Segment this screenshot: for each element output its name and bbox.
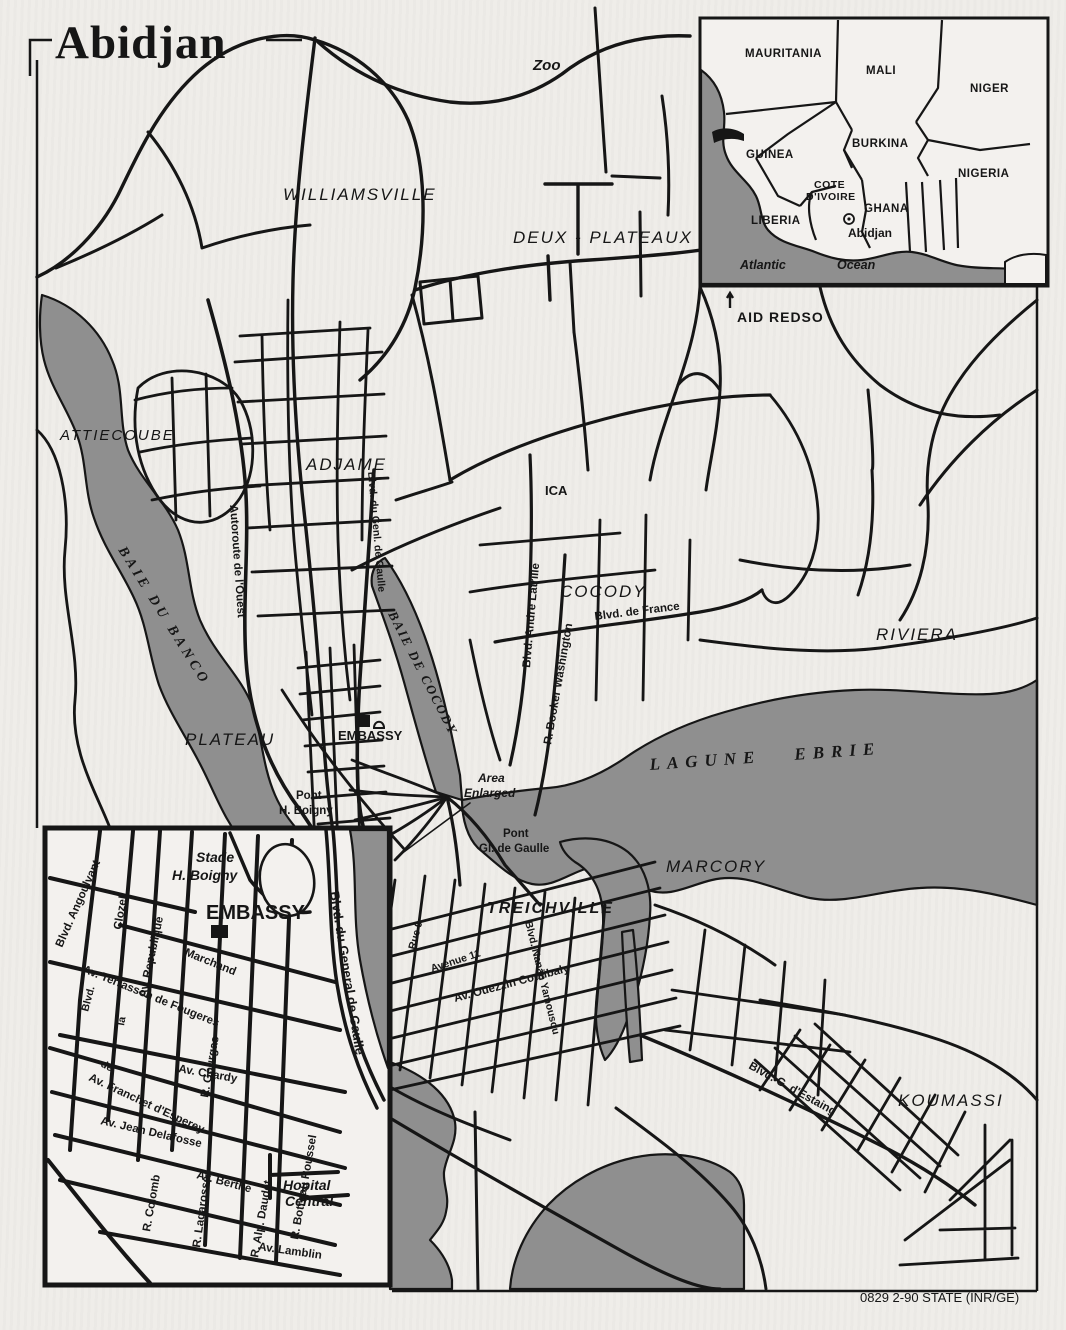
road (450, 395, 770, 480)
road (293, 38, 336, 852)
country-label-niger: NIGER (970, 83, 1009, 95)
niger-delta-shape (1005, 254, 1046, 284)
poi-label-hopital-2: Central (285, 1193, 334, 1209)
poi-label-stade-1: Stade (196, 849, 234, 865)
road (655, 905, 775, 965)
ocean-label-ocean: Ocean (837, 258, 876, 272)
poi-label-aid-redso: AID REDSO (737, 309, 824, 325)
road (678, 374, 720, 390)
country-label-cote-1: COTE (814, 179, 845, 191)
district-label-williamsville: WILLIAMSVILLE (283, 185, 437, 204)
city-label-abidjan: Abidjan (848, 226, 892, 240)
road (172, 374, 210, 520)
road (700, 618, 1037, 651)
road (858, 390, 873, 595)
poi-label-stade-2: H. Boigny (172, 867, 239, 883)
road (262, 300, 368, 715)
country-label-mali: MALI (866, 65, 896, 77)
poi-label-embassy-inset: EMBASSY (206, 902, 306, 924)
road (760, 1030, 965, 1192)
poi-label-ica: ICA (545, 483, 568, 498)
district-label-cocody: COCODY (560, 582, 647, 601)
lagoon-south-water (510, 1154, 744, 1289)
road (56, 215, 162, 268)
road (595, 8, 606, 172)
road (760, 1000, 1037, 1100)
region-inset: MAURITANIA MALI NIGER GUINEA BURKINA NIG… (700, 18, 1048, 286)
aid-redso-marker (727, 293, 733, 308)
poi-label-area-enlarged-1: Area (477, 771, 505, 785)
embassy-marker (356, 715, 370, 727)
abidjan-city-dot (847, 217, 850, 220)
embassy-inset-marker (211, 925, 228, 938)
poi-label-pont-boigny-1: Pont (296, 790, 322, 802)
district-label-marcory: MARCORY (666, 857, 766, 876)
poi-label-pont-boigny-2: H. Boigny (279, 805, 333, 817)
road (415, 244, 735, 290)
country-label-mauritania: MAURITANIA (745, 48, 822, 60)
street-label-autoroute: Autoroute de l'Ouest (227, 504, 247, 618)
lagoon-arm-west-water (390, 1062, 455, 1289)
road (420, 276, 482, 324)
district-label-riviera: RIVIERA (876, 625, 958, 644)
road (662, 96, 669, 215)
district-label-treichville: TREICHVILLE (487, 900, 614, 917)
poi-label-area-enlarged-2: Enlarged (464, 786, 516, 800)
poi-label-pont-gaulle-2: Gl. de Gaulle (479, 843, 549, 855)
road (820, 287, 1000, 417)
road (574, 332, 588, 470)
page-title: Abidjan (55, 17, 227, 69)
abidjan-map: Abidjan Zoo WILLIAMSVILLE DEUX - PLATEAU… (0, 0, 1066, 1330)
road (318, 36, 690, 103)
district-label-attiecoube: ATTIECOUBE (59, 427, 175, 444)
country-label-guinea: GUINEA (746, 149, 794, 161)
poi-label-pont-gaulle-1: Pont (503, 828, 529, 840)
country-label-nigeria: NIGERIA (958, 168, 1009, 180)
poi-label-zoo: Zoo (532, 57, 561, 74)
district-label-koumassi: KOUMASSI (898, 1091, 1004, 1110)
district-label-plateau: PLATEAU (185, 730, 275, 749)
country-label-burkina: BURKINA (852, 138, 909, 150)
map-credit: 0829 2-90 STATE (INR/GE) (860, 1290, 1019, 1305)
ocean-label-atlantic: Atlantic (739, 258, 786, 272)
country-label-liberia: LIBERIA (751, 215, 801, 227)
road (650, 287, 700, 480)
district-label-deux-plateaux: DEUX - PLATEAUX (513, 228, 693, 247)
area-enlarged-pointer (397, 803, 470, 857)
street-label-latrille: Blvd. Andre Latrille (521, 563, 542, 669)
country-label-cote-2: D'IVOIRE (806, 191, 856, 203)
road (762, 395, 818, 603)
country-label-ghana: GHANA (864, 203, 909, 215)
scanned-map-page: Abidjan Zoo WILLIAMSVILLE DEUX - PLATEAU… (0, 0, 1066, 1330)
road (900, 300, 1037, 620)
plateau-inset: Stade H. Boigny EMBASSY Hopital Central … (45, 828, 390, 1285)
pont-boigny-bridge (447, 797, 460, 885)
road (570, 176, 660, 332)
road (470, 640, 500, 760)
baie-de-cocody-water (372, 558, 462, 800)
poi-label-embassy: EMBASSY (338, 728, 403, 743)
